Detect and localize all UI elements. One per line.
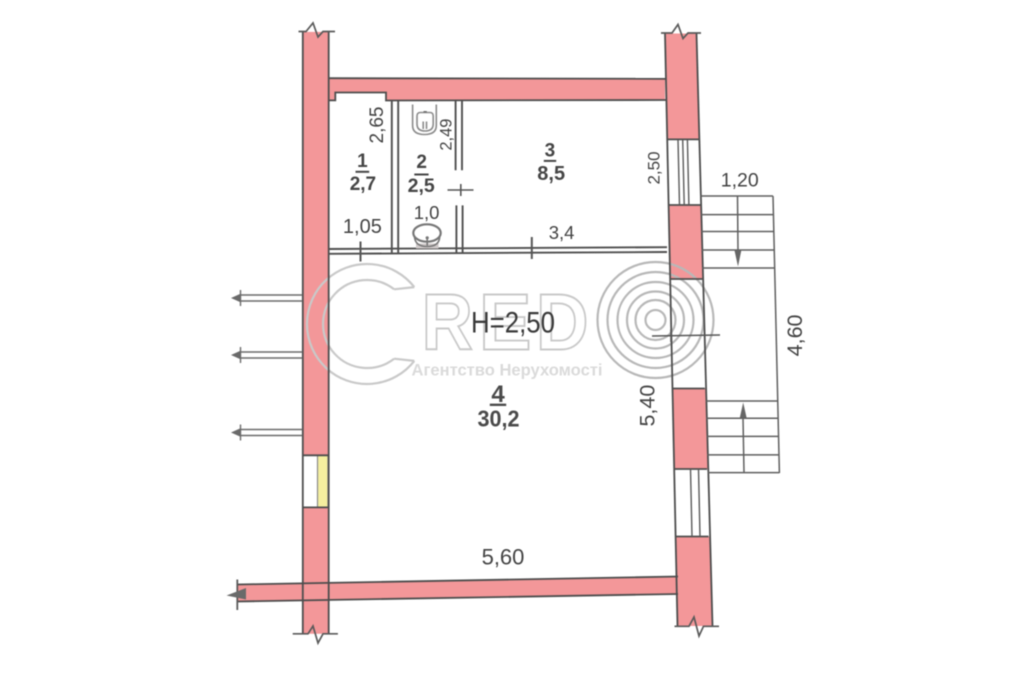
svg-text:1: 1 <box>357 151 368 172</box>
svg-text:4,60: 4,60 <box>783 314 807 356</box>
svg-text:Агентство Нерухомості: Агентство Нерухомості <box>412 361 603 380</box>
svg-text:8,5: 8,5 <box>537 163 565 185</box>
svg-text:5,40: 5,40 <box>635 385 659 427</box>
svg-text:2,65: 2,65 <box>367 107 388 144</box>
svg-text:2,7: 2,7 <box>350 174 376 195</box>
svg-text:R: R <box>422 278 473 367</box>
svg-text:2: 2 <box>416 152 427 173</box>
svg-text:30,2: 30,2 <box>478 406 520 432</box>
svg-text:2,5: 2,5 <box>408 175 435 197</box>
svg-text:1,0: 1,0 <box>414 202 440 223</box>
svg-text:H=2,50: H=2,50 <box>471 307 555 340</box>
svg-text:3: 3 <box>545 141 556 162</box>
svg-text:2,50: 2,50 <box>645 151 664 184</box>
svg-text:5,60: 5,60 <box>482 545 525 570</box>
svg-text:1,20: 1,20 <box>721 170 759 192</box>
svg-text:2,49: 2,49 <box>437 119 455 151</box>
svg-text:3,4: 3,4 <box>549 222 575 243</box>
svg-text:1,05: 1,05 <box>343 216 382 238</box>
